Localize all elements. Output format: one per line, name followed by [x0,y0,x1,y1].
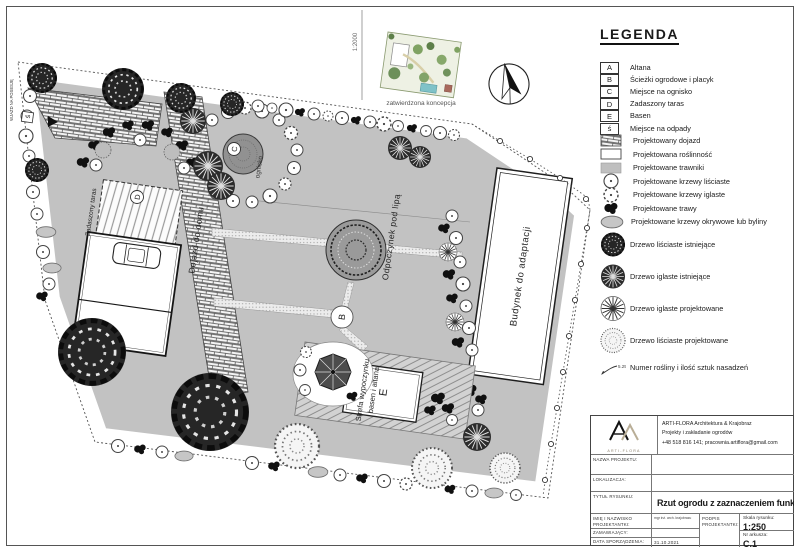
legend-item-paths: B Ścieżki ogrodowe i placyk [600,73,796,85]
existing-deciduous-tree-icon [600,231,626,258]
plant-number-arrow-icon: 5.25 [600,360,626,376]
legend-item-altana: A Altana [600,61,796,73]
company-info: ARTI-FLORA Architektura & Krajobraz Proj… [657,416,794,454]
date-label: DATA SPORZĄDZENIA: [591,537,651,547]
legend-item-proposed-deciduous: Drzewo liściaste projektowane [600,325,796,357]
legend-item-groundcover: Projektowane krzewy okrywowe lub byliny [600,215,796,229]
title-block: ARTI-FLORA ARTI-FLORA Architektura & Kra… [590,415,794,546]
entrance-label: WJAZD NA POSESJĘ [9,79,14,121]
company-line-2: Projekty i zakładanie ogrodów [662,429,794,438]
legend-item-existing-conifer: Drzewo iglaste istniejące [600,261,796,293]
scale-cell: Skala rysunku: 1:250 [739,513,794,530]
sheet-number-cell: Nr arkusza: C.1 [739,530,794,547]
terrace-badge: D [131,191,144,204]
legend-item-lawn: Projektowane trawniki [600,161,796,175]
inset-caption: zatwierdzona koncepcja [386,100,456,107]
brick-swatch-icon [600,134,626,147]
white-swatch-icon [600,148,626,160]
proposed-conifer-tree-icon [600,295,626,322]
legend-letter-a: A [600,62,619,74]
legend-item-deciduous-shrubs: Projektowane krzewy liściaste [600,175,796,189]
company-line-1: ARTI-FLORA Architektura & Krajobraz [662,420,794,429]
legend-item-terrace: D Zadaszony taras [600,98,796,110]
legend: LEGENDA A Altana B Ścieżki ogrodowe i pl… [600,26,796,377]
legend-item-existing-deciduous: Drzewo liściaste istniejące [600,229,796,261]
drawing-title: Rzut ogrodu z zaznaczeniem funkcji [651,491,794,513]
gazebo [315,354,351,390]
project-name-value [651,454,794,474]
legend-item-conifer-shrubs: Projektowane krzewy iglaste [600,188,796,202]
signature-cell: PODPIS PROJEKTANTKI: [699,513,739,547]
approved-concept-inset: 1:2000 zatwierdzona koncepcja [353,10,461,107]
legend-item-planting: Projektowana roślinność [600,148,796,162]
designer-label: IMIĘ I NAZWISKO PROJEKTANTKI: [591,513,651,528]
waste-badge: ś [21,111,33,122]
sheet-number-value: C.1 [740,538,794,547]
inset-scale-label: 1:2000 [353,32,359,51]
path-node-b: B [331,306,353,328]
legend-item-proposed-conifer: Drzewo iglaste projektowane [600,293,796,325]
company-logo: ARTI-FLORA [591,416,657,454]
company-line-3: +48 518 816 141; pracownia.artiflora@gma… [662,439,794,448]
arti-flora-logo-icon [606,419,642,443]
legend-item-grasses: Projektowane trawy [600,202,796,216]
gray-swatch-icon [600,162,626,174]
legend-item-plant-number: 5.25 Numer rośliny i ilość sztuk nasadze… [600,359,796,377]
location-value [651,474,794,491]
project-name-label: NAZWA PROJEKTU: [591,454,651,474]
location-label: LOKALIZACJA: [591,474,651,491]
client-label: ZAMAWIAJĄCY: [591,528,651,537]
designer-value: mgr inż. arch. krajobrazu [651,513,699,528]
legend-title: LEGENDA [600,26,679,45]
drawing-title-label: TYTUŁ RYSUNKU: [591,491,651,513]
legend-item-driveway: Projektowany dojazd [600,134,796,148]
north-arrow-icon [485,59,533,107]
date-value: 31.10.2021 [651,537,699,547]
client-value [651,528,699,537]
drawing-sheet: Budynek do adaptacji [0,0,800,552]
firepit-badge: C [228,143,241,156]
linden-tree [326,220,386,280]
legend-item-firepit: C Miejsce na ognisko [600,85,796,97]
svg-text:5.25: 5.25 [618,364,626,369]
existing-conifer-tree-icon [600,263,626,290]
proposed-deciduous-tree-icon [600,327,626,354]
legend-item-waste: ś Miejsce na odpady [600,122,796,134]
legend-item-pool: E Basen [600,110,796,122]
concept-mini-plan [380,32,461,98]
scale-value: 1:250 [740,521,794,530]
groundcover-blob-icon [600,215,626,229]
